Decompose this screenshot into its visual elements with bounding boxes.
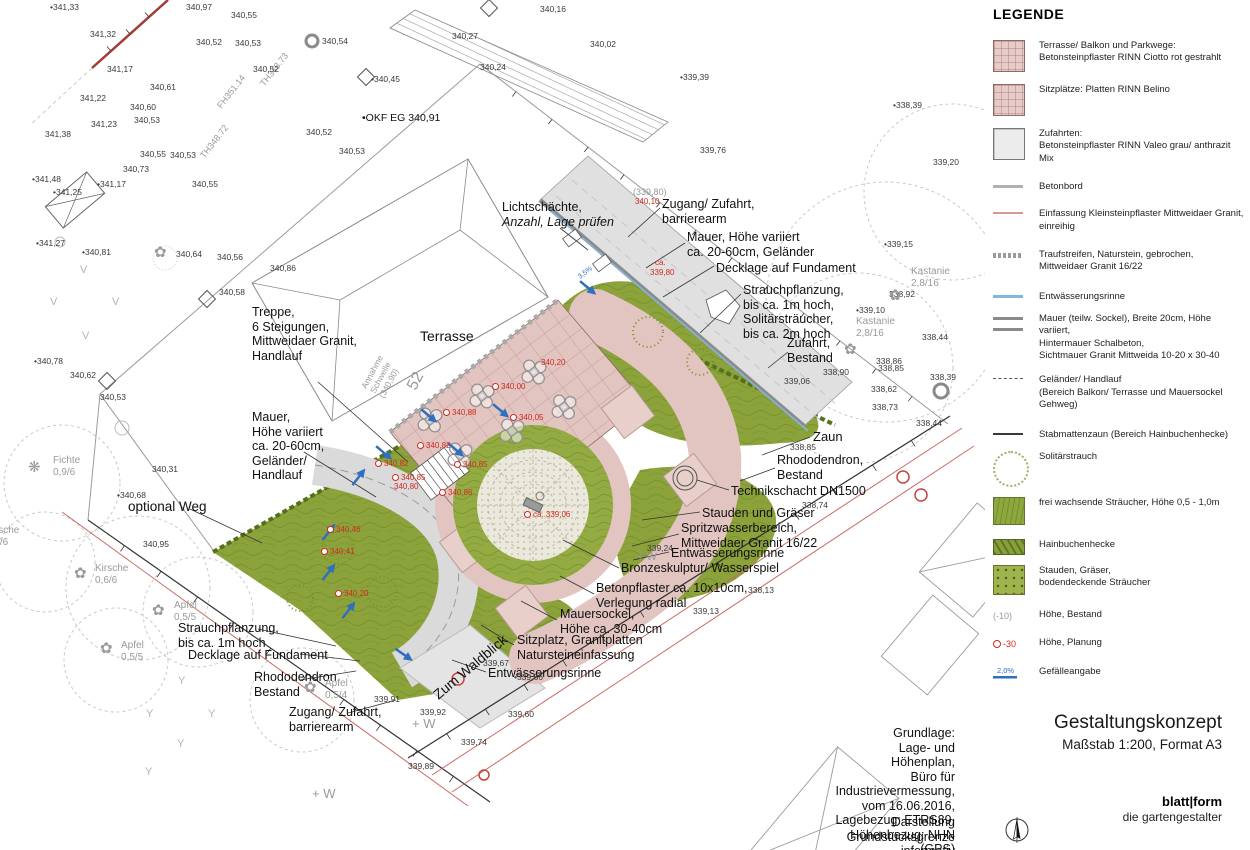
survey-point: 340,62 (70, 370, 96, 380)
height-marker-dot (375, 460, 382, 467)
legend-symbol-text: -30 (993, 639, 1016, 649)
legend-swatch-icon: -30 (993, 637, 1027, 649)
annotation: Betonpflaster ca. 10x10cm, Verlegung rad… (596, 581, 747, 610)
annotation: TH348.72 (198, 123, 231, 161)
planned-height: 340,20 (541, 358, 565, 367)
legend-swatch-icon (993, 313, 1027, 331)
legend-swatch-icon (993, 128, 1027, 160)
legend-symbol (993, 40, 1025, 72)
height-marker-dot (443, 409, 450, 416)
survey-point: 339,91 (374, 694, 400, 704)
height-marker-dot (492, 383, 499, 390)
annotation: FH351.14 (215, 73, 248, 111)
survey-point: 339,74 (461, 737, 487, 747)
height-marker-dot (335, 590, 342, 597)
planned-height: 340,85 (392, 473, 425, 482)
planned-height: 340,82 (417, 441, 450, 450)
legend-item-label: Betonbord (1039, 181, 1083, 193)
survey-point: 339,24 (647, 543, 673, 553)
tree-label: Kirsche 0,6/6 (95, 563, 128, 587)
survey-point: 340,58 (219, 287, 245, 297)
survey-point: 339,60 (508, 709, 534, 719)
annotation: Mauersockel, Höhe ca. 30-40cm (560, 607, 662, 636)
survey-point: •340,81 (82, 247, 111, 257)
legend-item-label: Einfassung Kleinsteinpflaster Mittweidae… (1039, 208, 1243, 233)
height-marker-dot (417, 442, 424, 449)
survey-point: 338,62 (871, 384, 897, 394)
title-block: Gestaltungskonzept Maßstab 1:200, Format… (985, 712, 1222, 824)
survey-point: •339,39 (680, 72, 709, 82)
legend-swatch-icon: (-10) (993, 609, 1027, 621)
survey-point: 340,27 (452, 31, 478, 41)
legend-item: Stabmattenzaun (Bereich Hainbuchenhecke) (993, 429, 1244, 441)
legend-swatch-icon (993, 497, 1027, 525)
conifer-mark: Y (146, 708, 153, 720)
survey-point: 340,24 (480, 62, 506, 72)
survey-point: •341,48 (32, 174, 61, 184)
survey-point: 340,53 (134, 115, 160, 125)
annotation: Treppe, 6 Steigungen, Mittweidaer Granit… (252, 305, 357, 363)
survey-point: 340,31 (152, 464, 178, 474)
legend-item: -30Höhe, Planung (993, 637, 1244, 649)
legend-symbol: 2,0% (993, 666, 1017, 679)
height-marker-dot (392, 474, 399, 481)
survey-point: 339,06 (784, 376, 810, 386)
survey-point: 340,61 (150, 82, 176, 92)
legend-swatch-icon (993, 249, 1027, 258)
legend-symbol-text: (-10) (993, 611, 1012, 621)
planned-height: 340,05 (510, 413, 543, 422)
conifer-mark: V (50, 296, 57, 308)
plan-labels: Lichtschächte,Anzahl, Lage prüfenZugang/… (0, 0, 985, 850)
legend-symbol (993, 451, 1029, 487)
annotation: Sitzplatz, Granitplatten Natursteineinfa… (517, 633, 643, 662)
legend-symbol (993, 433, 1023, 435)
planned-height: 340,20 (335, 589, 368, 598)
annotation: Entwässerungsrinne (671, 546, 784, 561)
tree-label: Apfel 0,5/5 (174, 600, 197, 624)
annotation: Entwässerungsrinne (488, 666, 601, 681)
survey-point: 339,20 (933, 157, 959, 167)
legend-symbol (993, 295, 1023, 298)
survey-point: •341,33 (50, 2, 79, 12)
legend-item: Traufstreifen, Naturstein, gebrochen, Mi… (993, 249, 1244, 274)
survey-point: 341,38 (45, 129, 71, 139)
survey-point: •339,15 (884, 239, 913, 249)
legend-item-label: frei wachsende Sträucher, Höhe 0,5 - 1,0… (1039, 497, 1220, 509)
legend-item-label: Gefälleangabe (1039, 666, 1101, 678)
survey-point: 340,54 (322, 36, 348, 46)
legend-symbol: (-10) (993, 609, 1012, 621)
survey-point: 338,13 (748, 585, 774, 595)
conifer-mark: Y (177, 738, 184, 750)
survey-point: 340,52 (253, 64, 279, 74)
survey-point: 338,44 (916, 418, 942, 428)
survey-point: 340,53 (235, 38, 261, 48)
tree-icon: ✿ (152, 601, 165, 619)
tree-icon: ✿ (304, 678, 317, 696)
survey-point: 339,67 (483, 658, 509, 668)
legend-item-label: Solitärstrauch (1039, 451, 1097, 463)
survey-point: 338,39 (930, 372, 956, 382)
legend-item: Entwässerungsrinne (993, 291, 1244, 303)
survey-point: 338,74 (802, 500, 828, 510)
conifer-mark: Y (178, 675, 185, 687)
survey-point: 340,52 (196, 37, 222, 47)
survey-point: 339,92 (420, 707, 446, 717)
conifer-mark: Y (145, 766, 152, 778)
annotation: Zugang/ Zufahrt, barrierearm (662, 197, 754, 226)
survey-point: •340,45 (371, 74, 400, 84)
planned-height: 340,46 (327, 525, 360, 534)
survey-point: 340,64 (176, 249, 202, 259)
survey-point: 340,95 (143, 539, 169, 549)
survey-point: •338,39 (893, 100, 922, 110)
legend-item: Hainbuchenhecke (993, 539, 1244, 555)
legend-item-label: Entwässerungsrinne (1039, 291, 1125, 303)
legend-symbol-text: 2,0% (997, 666, 1017, 675)
legend-symbol (993, 128, 1025, 160)
height-marker-dot (510, 414, 517, 421)
annotation: Strauchpflanzung, bis ca. 1m hoch (178, 621, 279, 650)
legend-item-label: Terrasse/ Balkon und Parkwege: Betonstei… (1039, 40, 1221, 65)
legend-symbol (993, 84, 1025, 116)
legend-item: Zufahrten: Betonsteinpflaster RINN Valeo… (993, 128, 1244, 165)
tree-icon: ❋ (28, 458, 41, 476)
survey-point: 340,02 (590, 39, 616, 49)
legend-item: Solitärstrauch (993, 451, 1244, 487)
legend-swatch-icon (993, 451, 1027, 487)
legend-swatch-icon (993, 291, 1027, 298)
legend-item-label: Höhe, Bestand (1039, 609, 1102, 621)
survey-point: •341,25 (53, 187, 82, 197)
survey-point: 341,23 (91, 119, 117, 129)
survey-point: 338,44 (922, 332, 948, 342)
legend-item: Terrasse/ Balkon und Parkwege: Betonstei… (993, 40, 1244, 72)
legend-symbol (993, 565, 1025, 595)
survey-point: •341,17 (97, 179, 126, 189)
legend-item-label: Höhe, Planung (1039, 637, 1102, 649)
survey-point: 340,73 (123, 164, 149, 174)
legend-item: Geländer/ Handlauf (Bereich Balkon/ Terr… (993, 374, 1244, 411)
planned-height: 340,88 (443, 408, 476, 417)
conifer-mark: V (112, 296, 119, 308)
legend-symbol (993, 539, 1025, 555)
legend-item-label: Stabmattenzaun (Bereich Hainbuchenhecke) (1039, 429, 1228, 441)
studio-name: blatt|form (985, 794, 1222, 809)
annotation: Mauer, Höhe variiert ca. 20-60cm, Geländ… (687, 230, 814, 259)
tree-label: Apfel 0,5/4 (325, 678, 348, 702)
legend-swatch-icon (993, 40, 1027, 72)
annotation: Annahme Schwelle (340,90) (360, 354, 403, 400)
tree-label: Kastanie 2,8/16 (911, 266, 950, 290)
conifer-mark: V (80, 264, 87, 276)
conifer-mark: Y (208, 708, 215, 720)
height-marker-dot (524, 511, 531, 518)
survey-point: 340,53 (170, 150, 196, 160)
tree-icon: ✿ (154, 243, 167, 261)
annotation: Technikschacht DN1500 (731, 484, 866, 499)
survey-point: 338,73 (872, 402, 898, 412)
legend-symbol (993, 378, 1023, 379)
annotation: Rhododendron, Bestand (777, 453, 863, 482)
legend-item: Einfassung Kleinsteinpflaster Mittweidae… (993, 208, 1244, 233)
legend-item: Betonbord (993, 181, 1244, 193)
tree-label: Kirsche 1,1/6 (0, 525, 19, 549)
annotation: Mauer, Höhe variiert ca. 20-60cm, Geländ… (252, 410, 324, 483)
survey-point: 341,22 (80, 93, 106, 103)
annotation: Terrasse (420, 328, 474, 344)
legend-symbol (993, 497, 1025, 525)
annotation: Decklage auf Fundament (716, 261, 856, 276)
legend-swatch-icon (993, 565, 1027, 595)
legend-item: Mauer (teilw. Sockel), Breite 20cm, Höhe… (993, 313, 1244, 362)
sheet-title: Gestaltungskonzept (985, 712, 1222, 734)
annotation: 52 (404, 369, 429, 393)
garden-design-plan-sheet: { "colors":{"path_pink":"#e2c4c0","green… (0, 0, 1250, 850)
annotation: Strauchpflanzung, bis ca. 1m hoch, Solit… (743, 283, 844, 341)
survey-point: •340,68 (117, 490, 146, 500)
legend-swatch-icon (993, 539, 1027, 555)
survey-point: 338,90 (823, 367, 849, 377)
survey-point: 338,85 (790, 442, 816, 452)
planned-height: 340,41 (321, 547, 354, 556)
legend-symbol (993, 212, 1023, 214)
survey-point: •341,27 (36, 238, 65, 248)
survey-point: 341,32 (90, 29, 116, 39)
tree-label: Kastanie 2,8/16 (856, 316, 895, 340)
legend-item-label: Sitzplätze: Platten RINN Belino (1039, 84, 1170, 96)
legend-item-label: Hainbuchenhecke (1039, 539, 1115, 551)
annotation: Decklage auf Fundament (188, 648, 328, 663)
legend-title: LEGENDE (993, 6, 1250, 22)
height-marker-dot (439, 489, 446, 496)
survey-point: 340,55 (140, 149, 166, 159)
planned-height: 339,80 (650, 268, 674, 277)
legend-item-label: Zufahrten: Betonsteinpflaster RINN Valeo… (1039, 128, 1244, 165)
planned-height: 340,82 (375, 459, 408, 468)
legend-swatch-icon: 2,0% (993, 666, 1027, 679)
tree-icon: ✿ (889, 286, 902, 304)
survey-point: 340,52 (306, 127, 332, 137)
planned-height: 340,80 (394, 482, 418, 491)
tree-icon: ✿ (74, 564, 87, 582)
legend-swatch-icon (993, 429, 1027, 435)
height-marker-dot (454, 461, 461, 468)
legend-swatch-icon (993, 374, 1027, 379)
survey-point: 340,16 (540, 4, 566, 14)
site-plan-canvas: Lichtschächte,Anzahl, Lage prüfenZugang/… (0, 0, 985, 850)
planned-height: ca. 339,06 (524, 510, 570, 519)
legend-item: 2,0%Gefälleangabe (993, 666, 1244, 679)
annotation: optional Weg (128, 499, 207, 515)
legend-item-label: Mauer (teilw. Sockel), Breite 20cm, Höhe… (1039, 313, 1244, 362)
survey-point: 340,55 (192, 179, 218, 189)
annotation: Stauden und Gräser (702, 506, 815, 521)
annotation: (339,80) (633, 187, 667, 197)
legend-swatch-icon (993, 181, 1027, 188)
survey-point: 339,89 (408, 761, 434, 771)
legend-symbol (993, 317, 1023, 331)
survey-point: 340,86 (270, 263, 296, 273)
survey-point: •339,66 (514, 672, 543, 682)
survey-point: 340,60 (130, 102, 156, 112)
annotation: Lichtschächte, (502, 200, 582, 215)
legend-swatch-icon (993, 84, 1027, 116)
annotation: 3,5% (577, 265, 595, 281)
tree-label: Fichte 0,9/6 (53, 455, 80, 479)
survey-point: 339,13 (693, 606, 719, 616)
annotation: + W (312, 786, 335, 801)
legend-item-label: Stauden, Gräser, bodendeckende Sträucher (1039, 565, 1150, 590)
planned-height: 340,00 (492, 382, 525, 391)
survey-point: 340,56 (217, 252, 243, 262)
annotation: Zufahrt, Bestand (787, 336, 833, 365)
legend-swatch-icon (993, 208, 1027, 214)
planned-height: 340,85 (454, 460, 487, 469)
conifer-mark: V (82, 330, 89, 342)
legend-item: (-10)Höhe, Bestand (993, 609, 1244, 621)
planned-height: 340,10 (635, 197, 659, 206)
sheet-scale: Maßstab 1:200, Format A3 (985, 737, 1222, 752)
legend-item-label: Traufstreifen, Naturstein, gebrochen, Mi… (1039, 249, 1193, 274)
survey-point: 341,17 (107, 64, 133, 74)
legend-item-label: Geländer/ Handlauf (Bereich Balkon/ Terr… (1039, 374, 1244, 411)
tree-label: Apfel 0,5/5 (121, 640, 144, 664)
annotation: Zugang/ Zufahrt, barrierearm (289, 705, 381, 734)
annotation: Zaun (813, 429, 843, 444)
north-arrow-icon (1003, 816, 1031, 844)
annotation: •OKF EG 340,91 (362, 112, 440, 124)
survey-point: •339,10 (856, 305, 885, 315)
survey-point: •340,78 (34, 356, 63, 366)
legend-symbol: -30 (993, 637, 1016, 649)
legend-item: Sitzplätze: Platten RINN Belino (993, 84, 1244, 116)
legend-item: frei wachsende Sträucher, Höhe 0,5 - 1,0… (993, 497, 1244, 525)
planned-height: 340,86 (439, 488, 472, 497)
planned-height: ca. (655, 258, 666, 267)
annotation: + W (412, 716, 435, 731)
survey-point: 340,97 (186, 2, 212, 12)
survey-point: 340,55 (231, 10, 257, 20)
legend-symbol (993, 185, 1023, 188)
survey-point: 340,53 (100, 392, 126, 402)
survey-point: 340,53 (339, 146, 365, 156)
legend-items: Terrasse/ Balkon und Parkwege: Betonstei… (985, 40, 1250, 679)
annotation: Anzahl, Lage prüfen (502, 215, 614, 230)
survey-point: 339,76 (700, 145, 726, 155)
survey-point: 338,85 (878, 363, 904, 373)
height-marker-dot (321, 548, 328, 555)
legend-symbol (993, 253, 1023, 258)
legend-item: Stauden, Gräser, bodendeckende Sträucher (993, 565, 1244, 595)
tree-icon: ✿ (844, 340, 857, 358)
tree-icon: ✿ (100, 639, 113, 657)
height-marker-dot (327, 526, 334, 533)
annotation: Darstellung Grundstücksgrenze informativ (847, 815, 955, 850)
